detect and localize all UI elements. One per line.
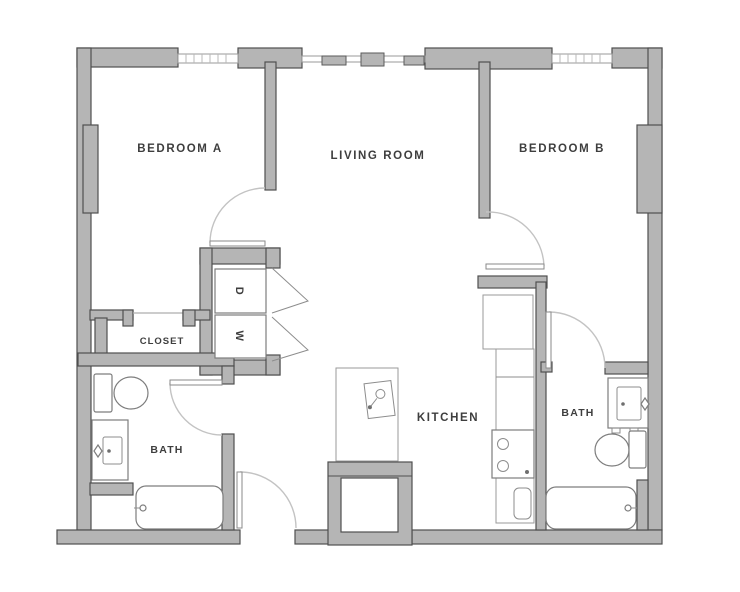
door-bedroom-a <box>210 188 265 246</box>
wall-left-column <box>83 125 98 213</box>
kitchen-island <box>336 368 398 461</box>
toilet-tank <box>94 374 112 412</box>
dryer-label: D <box>233 287 245 295</box>
door-arc <box>486 212 544 266</box>
window-center-mullion-1 <box>322 56 346 65</box>
door-bath-b <box>546 312 605 368</box>
wall-bath-a-right <box>222 434 234 530</box>
washer-label: W <box>233 331 245 342</box>
door-bedroom-b <box>486 212 544 269</box>
door-leaf <box>170 380 222 385</box>
wall-kitchen-bath-b <box>536 282 546 530</box>
bath-b-fixtures <box>546 378 649 529</box>
wall-bath-b-top <box>605 362 648 374</box>
wall-bottom-center <box>295 530 330 544</box>
window-right <box>552 54 612 63</box>
drain-dot <box>107 449 111 453</box>
wall-living-bedroom-b <box>479 62 490 218</box>
floor-plan-page: D W <box>0 0 740 592</box>
kitchen-label: KITCHEN <box>417 412 479 424</box>
wall-bath-b-tub-end <box>637 480 648 530</box>
wall-wd-corner-bottom <box>266 355 280 375</box>
floor-plan: D W <box>0 0 740 592</box>
bifold-door-bottom <box>272 317 308 361</box>
range-knob <box>525 470 529 474</box>
toilet-bowl <box>114 377 148 409</box>
wall-right-column <box>637 125 662 213</box>
wall-top-slab-1 <box>77 48 178 67</box>
tub-faucet-icon <box>140 505 146 511</box>
wall-bath-a-tub-end <box>90 483 133 495</box>
door-arc <box>549 312 605 368</box>
window-center-mullion-2 <box>361 53 384 66</box>
wall-bottom-right <box>412 530 662 544</box>
door-leaf <box>486 264 544 269</box>
wall-wd-corner-top <box>266 248 280 268</box>
bedroom-b-label: BEDROOM B <box>519 143 605 155</box>
toilet-bowl <box>595 434 629 466</box>
refrigerator <box>483 295 533 349</box>
wall-bath-a-jamb <box>222 366 234 384</box>
door-arc <box>240 472 296 528</box>
door-leaf <box>210 241 265 246</box>
wall-closet-jamb-right <box>183 310 195 326</box>
bathtub <box>136 486 223 529</box>
door-arc <box>170 383 222 435</box>
window-left <box>178 54 238 63</box>
vanity-foot <box>612 428 620 433</box>
utility-shaft <box>328 462 412 545</box>
wall-bottom-left <box>57 530 240 544</box>
drain-dot <box>621 402 625 406</box>
door-entry <box>237 472 296 528</box>
wall-bedroom-a-living <box>265 62 276 190</box>
door-bath-a <box>170 380 222 435</box>
bedroom-a-label: BEDROOM A <box>137 143 223 155</box>
bath-b-label: BATH <box>561 407 594 419</box>
washer-dryer-closet: D W <box>215 268 308 361</box>
door-arc <box>210 188 265 243</box>
window-center-mullion-3 <box>404 56 424 65</box>
shaft-inner <box>341 478 398 532</box>
toilet-tank <box>629 431 646 468</box>
living-room-label: LIVING ROOM <box>331 150 426 162</box>
wall-left <box>77 48 91 530</box>
wall-closet-divider <box>95 318 107 357</box>
tub-faucet-icon <box>625 505 631 511</box>
door-leaf <box>546 312 551 368</box>
bifold-door-top <box>272 268 308 313</box>
wall-closet-bottom <box>78 353 234 366</box>
door-leaf <box>237 472 242 528</box>
wall-right <box>648 48 662 530</box>
bathtub <box>546 487 636 529</box>
bath-a-label: BATH <box>150 444 183 456</box>
closet-label: CLOSET <box>140 336 185 347</box>
wall-closet-jamb-left <box>123 310 133 326</box>
